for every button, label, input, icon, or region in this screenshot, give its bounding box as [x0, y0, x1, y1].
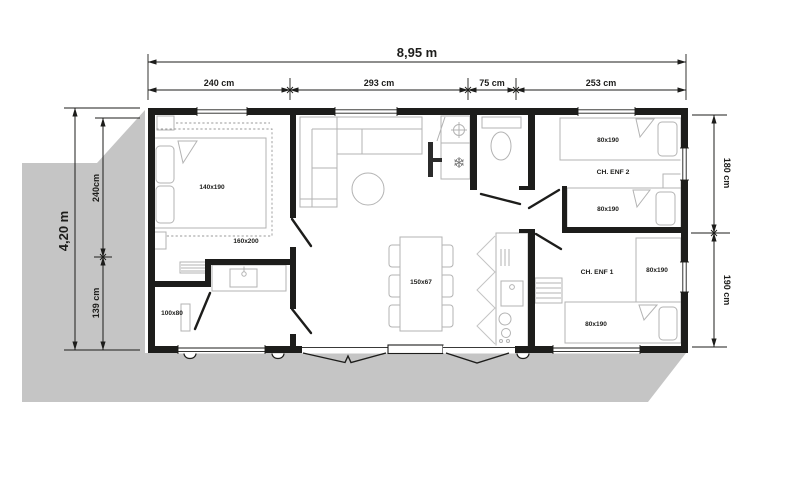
bed-zone-size-label: 160x200 — [233, 238, 259, 245]
vent-icon — [517, 354, 529, 359]
bedroom-closet — [157, 116, 174, 130]
pillow — [656, 192, 675, 225]
window — [197, 107, 247, 116]
dim-top-segment-3: 253 cm — [586, 78, 617, 88]
master-bed-size-label: 140x190 — [199, 184, 225, 191]
dim-top-segment-2: 75 cm — [479, 78, 505, 88]
window — [178, 345, 265, 354]
room-label-ch-enf-2: CH. ENF 2 — [597, 169, 630, 176]
child2-bed-top-label: 80x190 — [597, 137, 619, 144]
dim-total-height-label: 4,20 m — [56, 211, 71, 251]
dim-total-width-label: 8,95 m — [397, 45, 437, 60]
window — [578, 107, 635, 116]
dim-right-segment-0: 180 cm — [722, 158, 732, 189]
floor-plan-page: ❄ — [0, 0, 796, 480]
shower-size-label: 100x80 — [161, 310, 183, 317]
dim-left-segment-1: 139 cm — [91, 288, 101, 319]
pillow — [659, 307, 677, 340]
toilet-cistern — [482, 117, 521, 128]
shower-room — [181, 304, 190, 331]
bedroom-shelf — [180, 262, 207, 273]
snowflake-icon: ❄ — [453, 155, 466, 172]
dining-table-size-label: 150x67 — [410, 279, 432, 286]
dim-top-segment-1: 293 cm — [364, 78, 395, 88]
child2-bed-bottom-label: 80x190 — [597, 206, 619, 213]
pillow — [156, 146, 174, 183]
floor-plan: ❄ — [0, 0, 796, 480]
bathroom — [212, 265, 286, 291]
window — [335, 107, 397, 116]
pillow — [156, 186, 174, 223]
pillow — [658, 122, 677, 156]
window — [680, 262, 689, 292]
nightstand — [663, 174, 681, 188]
dim-top-segment-0: 240 cm — [204, 78, 235, 88]
vent-icon — [272, 354, 284, 359]
room-label-ch-enf-1: CH. ENF 1 — [581, 269, 614, 276]
dim-right-segment-1: 190 cm — [722, 275, 732, 306]
wardrobe-shelves — [535, 278, 562, 303]
toilet-icon — [491, 132, 511, 160]
vent-icon — [184, 354, 196, 359]
sliding-panel — [388, 345, 443, 354]
child1-bed-bottom-label: 80x190 — [585, 321, 607, 328]
dim-left-segment-0: 240cm — [91, 174, 101, 202]
shower-column — [181, 304, 190, 331]
window — [553, 345, 640, 354]
window — [680, 148, 689, 180]
child1-bed-right-label: 80x190 — [646, 267, 668, 274]
